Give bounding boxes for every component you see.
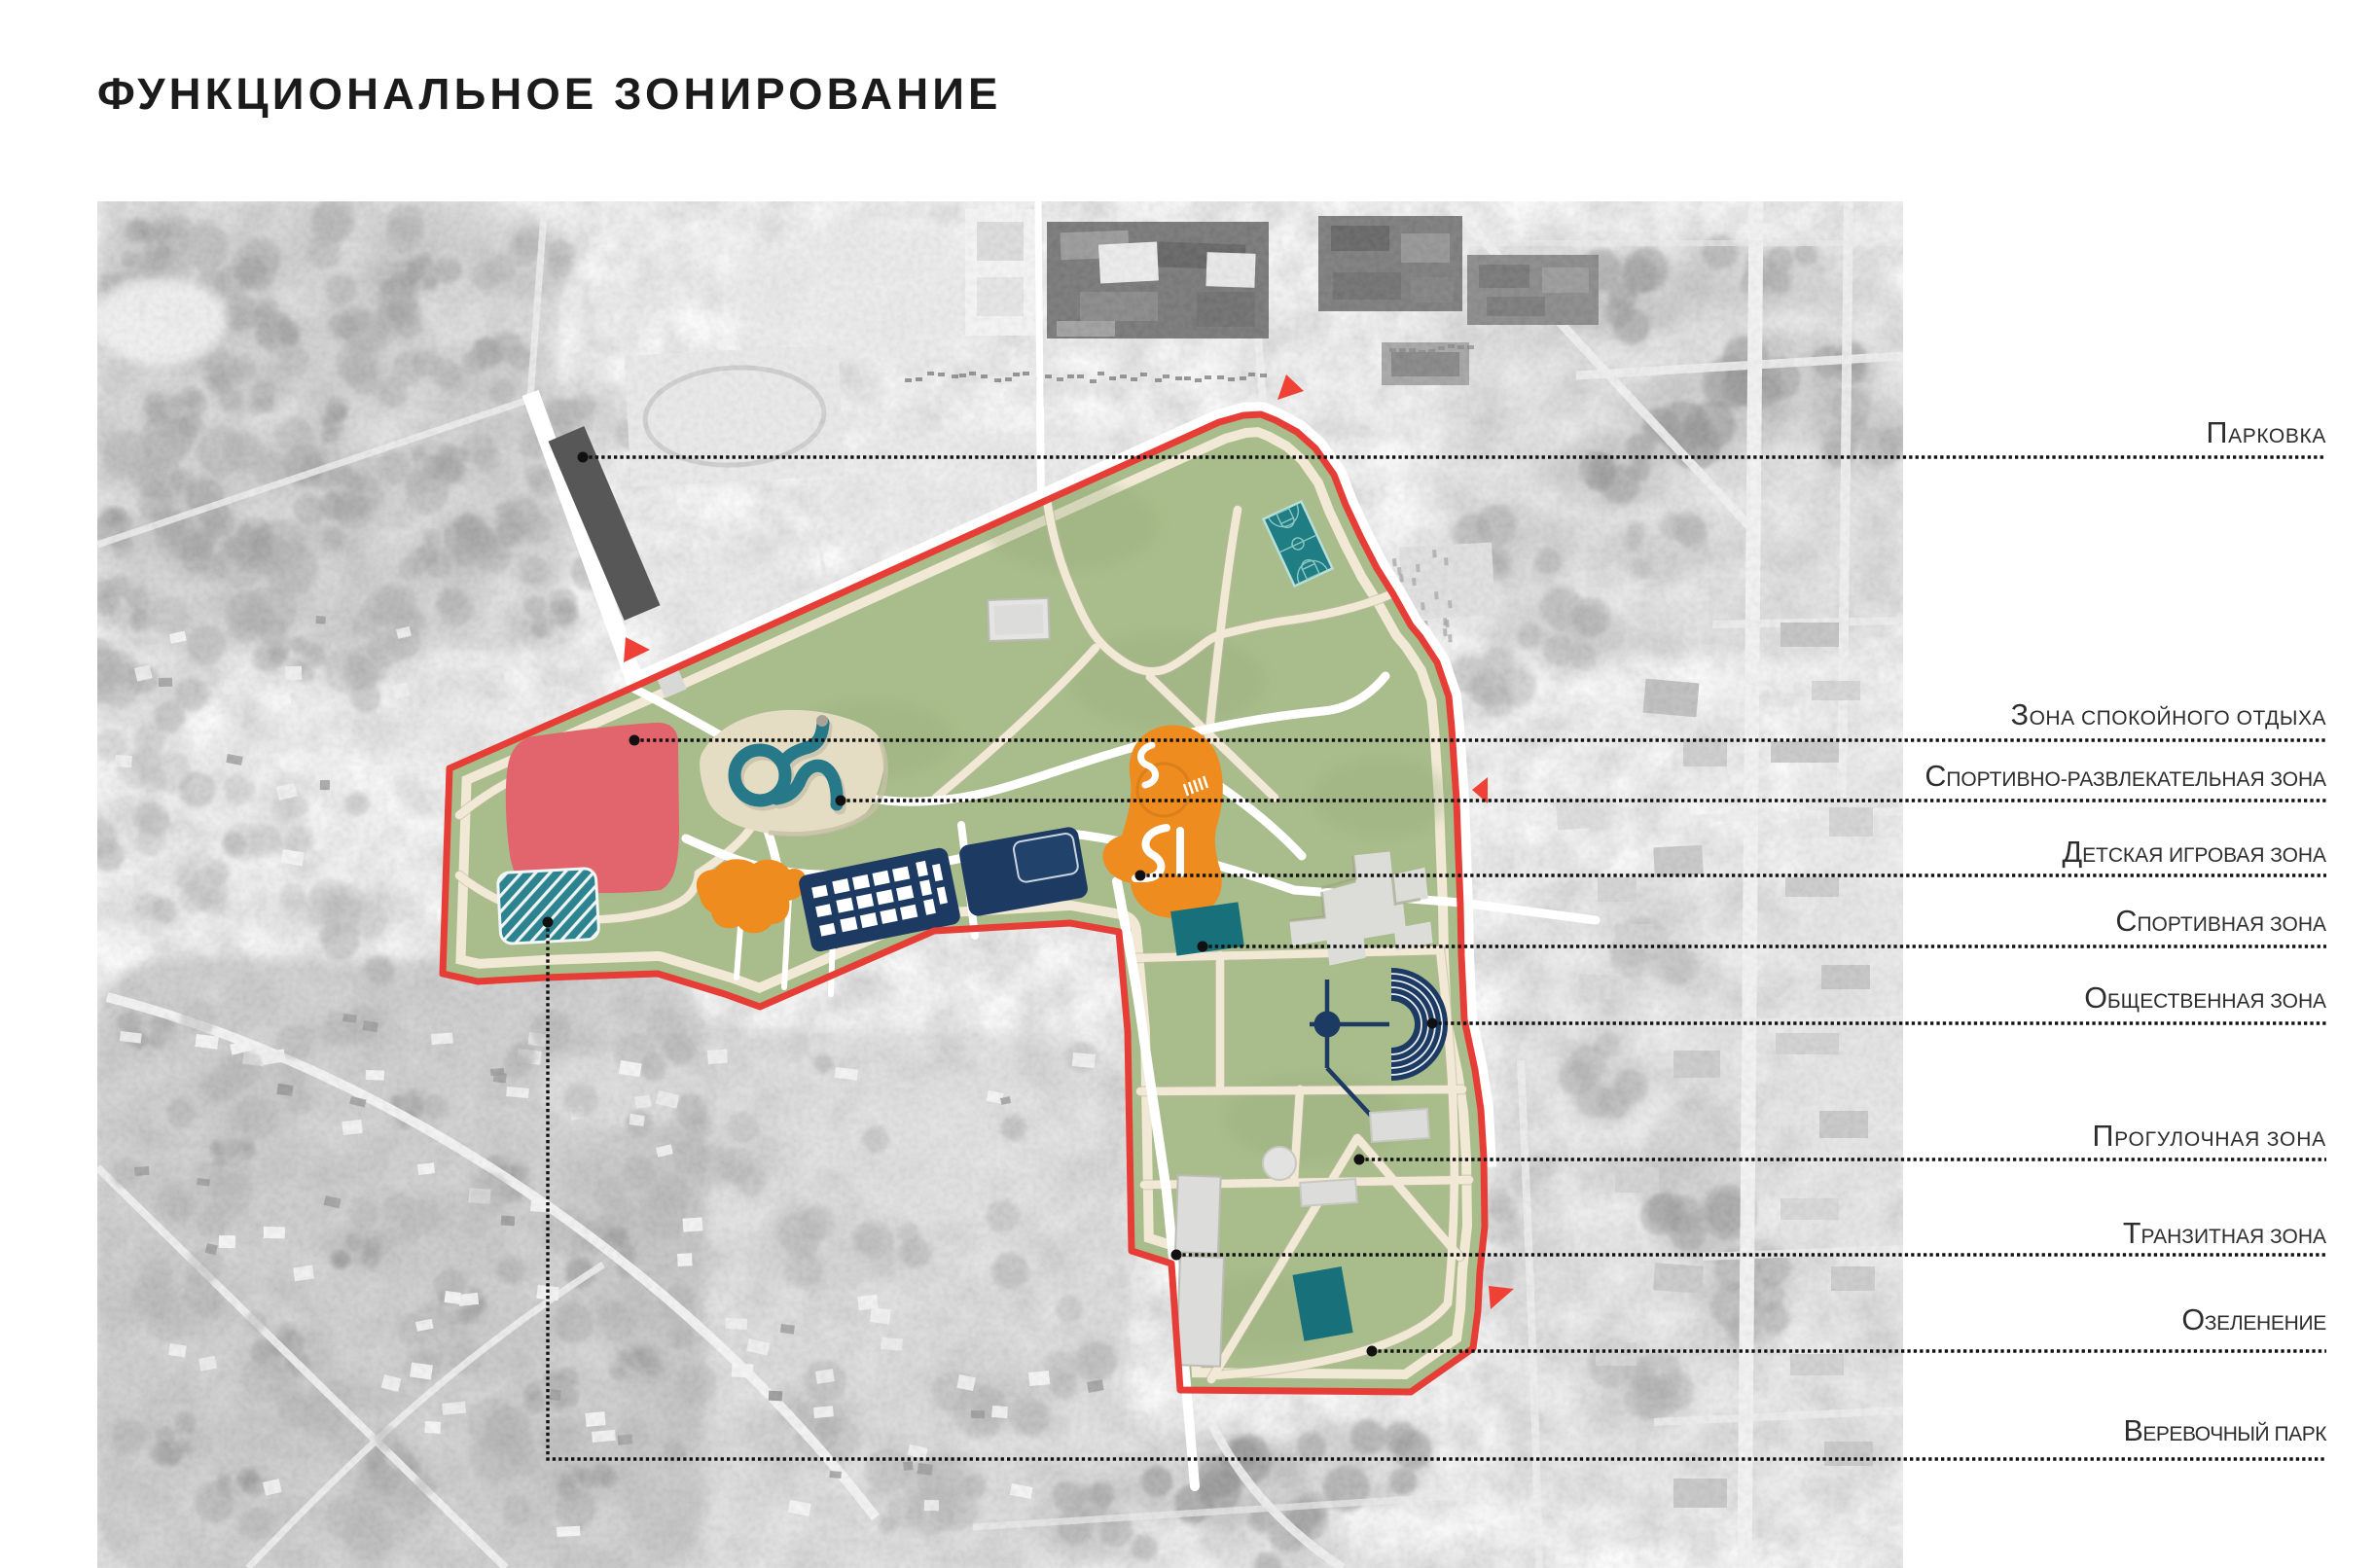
svg-text:ФУНКЦИОНАЛЬНОЕ ЗОНИРОВАНИЕ: ФУНКЦИОНАЛЬНОЕ ЗОНИРОВАНИЕ <box>97 69 1001 119</box>
